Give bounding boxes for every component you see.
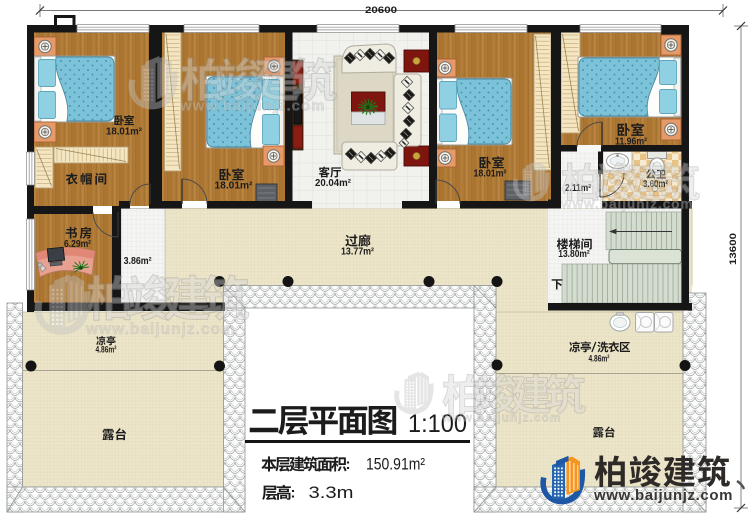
svg-text:18.01m²: 18.01m² — [474, 169, 508, 180]
svg-text:www.baijunjz.com: www.baijunjz.com — [593, 488, 733, 504]
svg-text::: : — [291, 485, 296, 502]
svg-text:www.baijunjz.com: www.baijunjz.com — [85, 321, 236, 338]
svg-text:13600: 13600 — [728, 233, 739, 265]
svg-text:13.80m²: 13.80m² — [558, 249, 590, 260]
svg-text:3.86m²: 3.86m² — [124, 256, 153, 267]
svg-text:4.86m²: 4.86m² — [96, 344, 117, 355]
svg-text:www.baijunjz.com: www.baijunjz.com — [560, 197, 694, 212]
svg-text:18.01m²: 18.01m² — [106, 127, 143, 138]
svg-text:13.77m²: 13.77m² — [341, 247, 375, 258]
svg-text:20600: 20600 — [365, 5, 397, 16]
svg-text:6.29m²: 6.29m² — [64, 239, 92, 250]
svg-text:150.91m²: 150.91m² — [366, 455, 425, 474]
svg-text:www.baijunjz.com: www.baijunjz.com — [441, 411, 562, 425]
svg-text:20.04m²: 20.04m² — [315, 178, 352, 189]
svg-text:18.01m²: 18.01m² — [215, 181, 254, 192]
svg-text:4.86m²: 4.86m² — [589, 353, 610, 364]
svg-text:3.3m: 3.3m — [309, 483, 354, 502]
svg-text:11.96m²: 11.96m² — [615, 137, 648, 148]
svg-text:www.baijunjz.com: www.baijunjz.com — [179, 98, 325, 115]
svg-text::: : — [346, 456, 351, 473]
